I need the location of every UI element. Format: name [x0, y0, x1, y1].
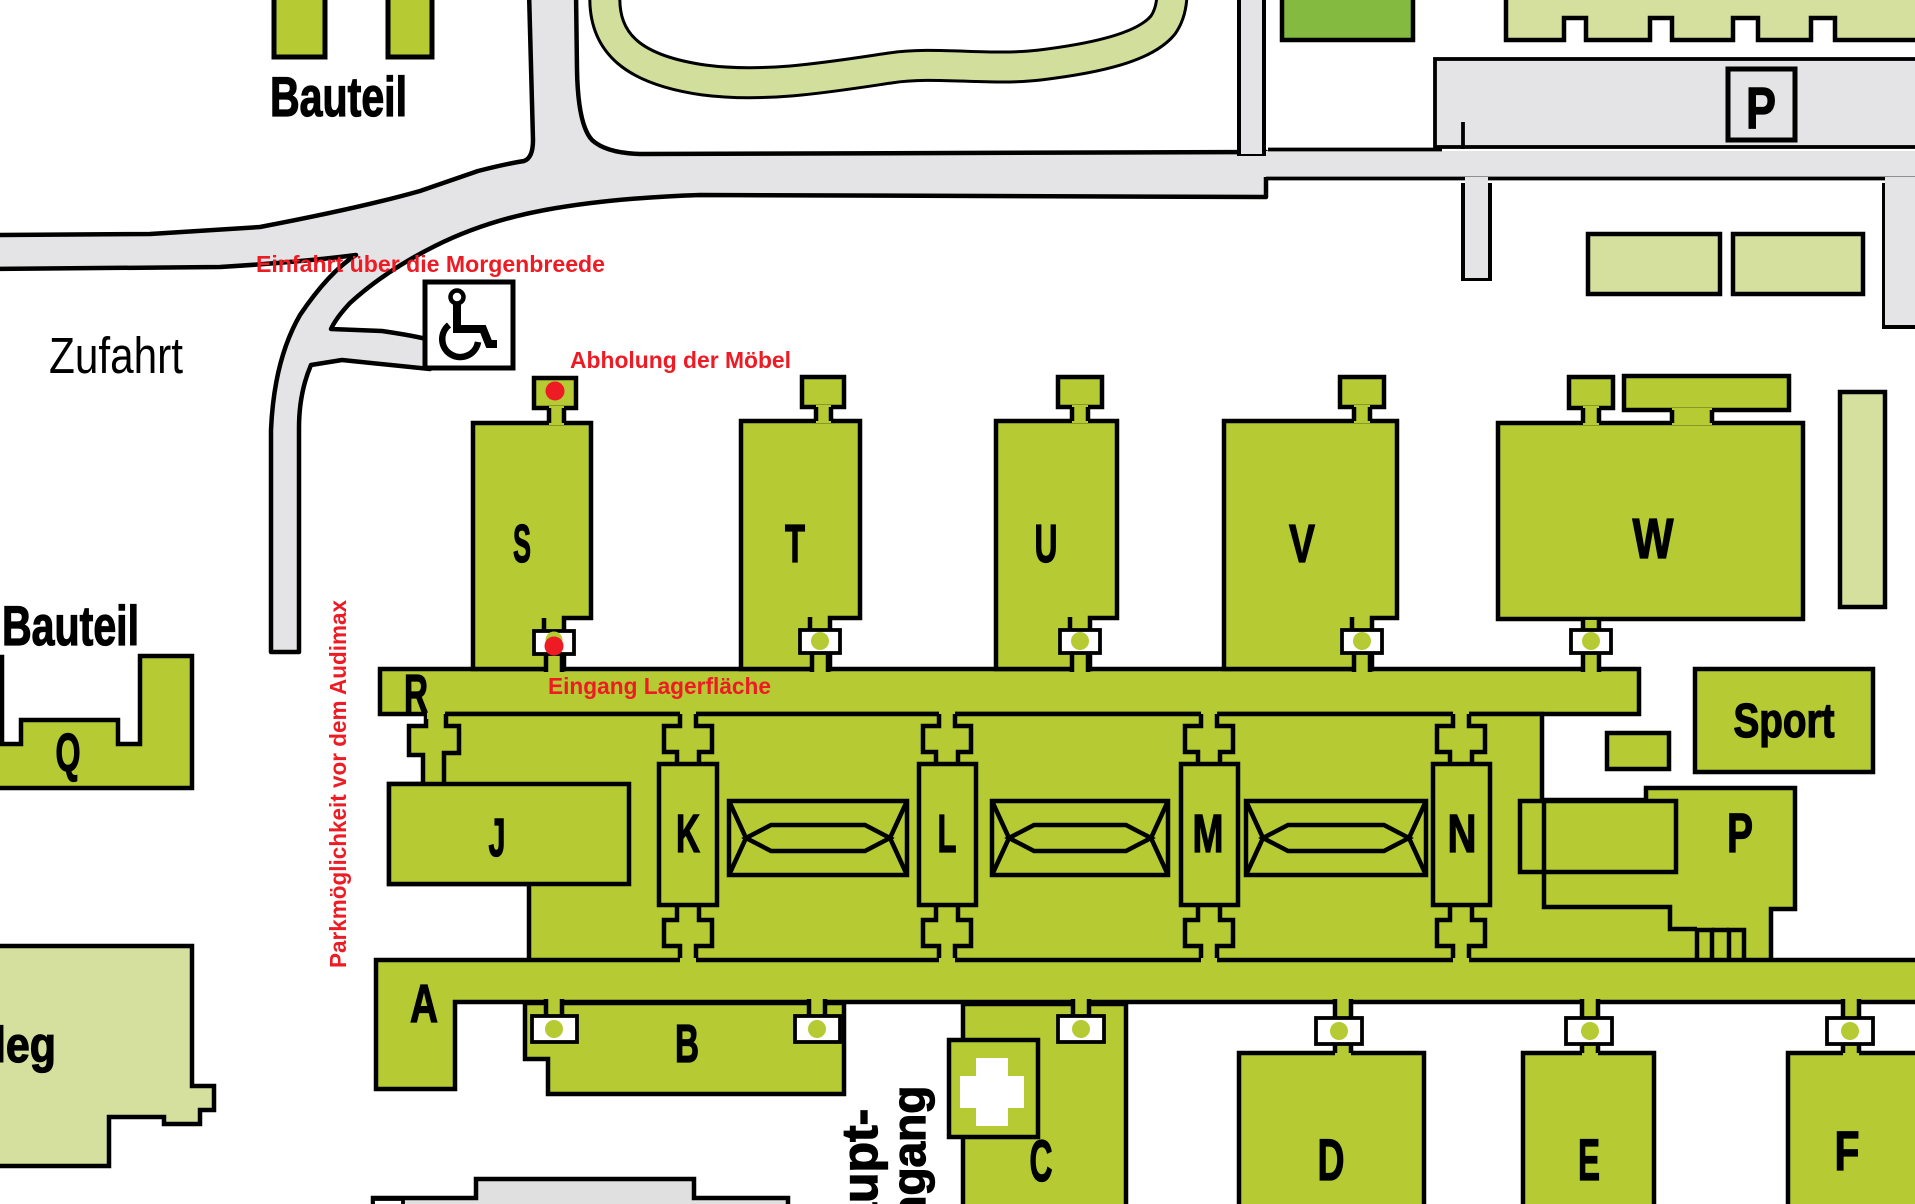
- svg-text:B: B: [675, 1014, 699, 1074]
- svg-text:Q: Q: [56, 723, 81, 783]
- svg-text:eingang: eingang: [883, 1086, 935, 1204]
- svg-text:Abholung der Möbel: Abholung der Möbel: [570, 347, 791, 373]
- svg-text:L: L: [938, 804, 957, 864]
- svg-text:Bauteil: Bauteil: [270, 65, 407, 128]
- svg-text:Eingang Lagerfläche: Eingang Lagerfläche: [548, 673, 771, 699]
- svg-text:leg: leg: [0, 1017, 56, 1073]
- svg-text:M: M: [1193, 804, 1224, 864]
- svg-text:K: K: [676, 804, 700, 864]
- svg-text:A: A: [410, 974, 438, 1034]
- svg-text:V: V: [1289, 514, 1315, 574]
- svg-text:P: P: [1727, 801, 1753, 864]
- svg-text:J: J: [489, 808, 506, 868]
- svg-text:R: R: [404, 664, 428, 724]
- svg-text:Bauteil: Bauteil: [2, 594, 139, 657]
- svg-text:W: W: [1633, 507, 1674, 571]
- svg-text:T: T: [785, 514, 805, 574]
- svg-text:E: E: [1578, 1128, 1600, 1193]
- svg-text:Einfahrt über die Morgenbreede: Einfahrt über die Morgenbreede: [256, 251, 605, 277]
- svg-text:Sport: Sport: [1734, 695, 1835, 748]
- svg-text:F: F: [1835, 1119, 1860, 1182]
- svg-text:Zufahrt: Zufahrt: [49, 327, 183, 384]
- svg-text:N: N: [1448, 804, 1477, 864]
- svg-text:P: P: [1746, 76, 1776, 141]
- svg-text:S: S: [513, 514, 531, 574]
- svg-text:D: D: [1318, 1128, 1345, 1193]
- svg-text:Haupt-: Haupt-: [832, 1109, 888, 1204]
- svg-text:U: U: [1035, 514, 1058, 574]
- svg-text:Parkmöglichkeit vor dem Audima: Parkmöglichkeit vor dem Audimax: [325, 600, 351, 968]
- svg-text:C: C: [1030, 1129, 1053, 1194]
